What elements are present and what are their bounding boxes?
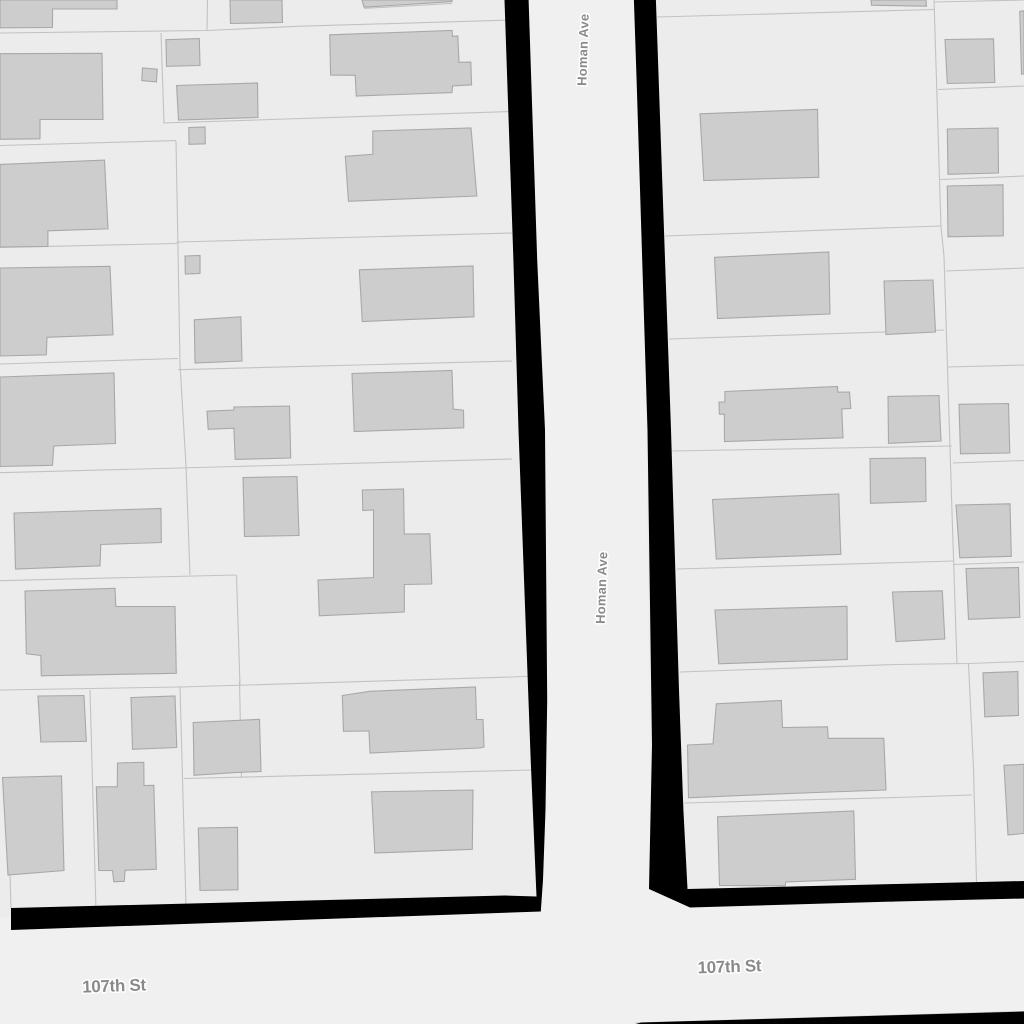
svg-text:Homan Ave: Homan Ave (593, 552, 611, 624)
svg-text:107th St: 107th St (697, 956, 762, 977)
svg-text:Homan Ave: Homan Ave (574, 14, 592, 86)
svg-text:107th St: 107th St (82, 975, 147, 996)
